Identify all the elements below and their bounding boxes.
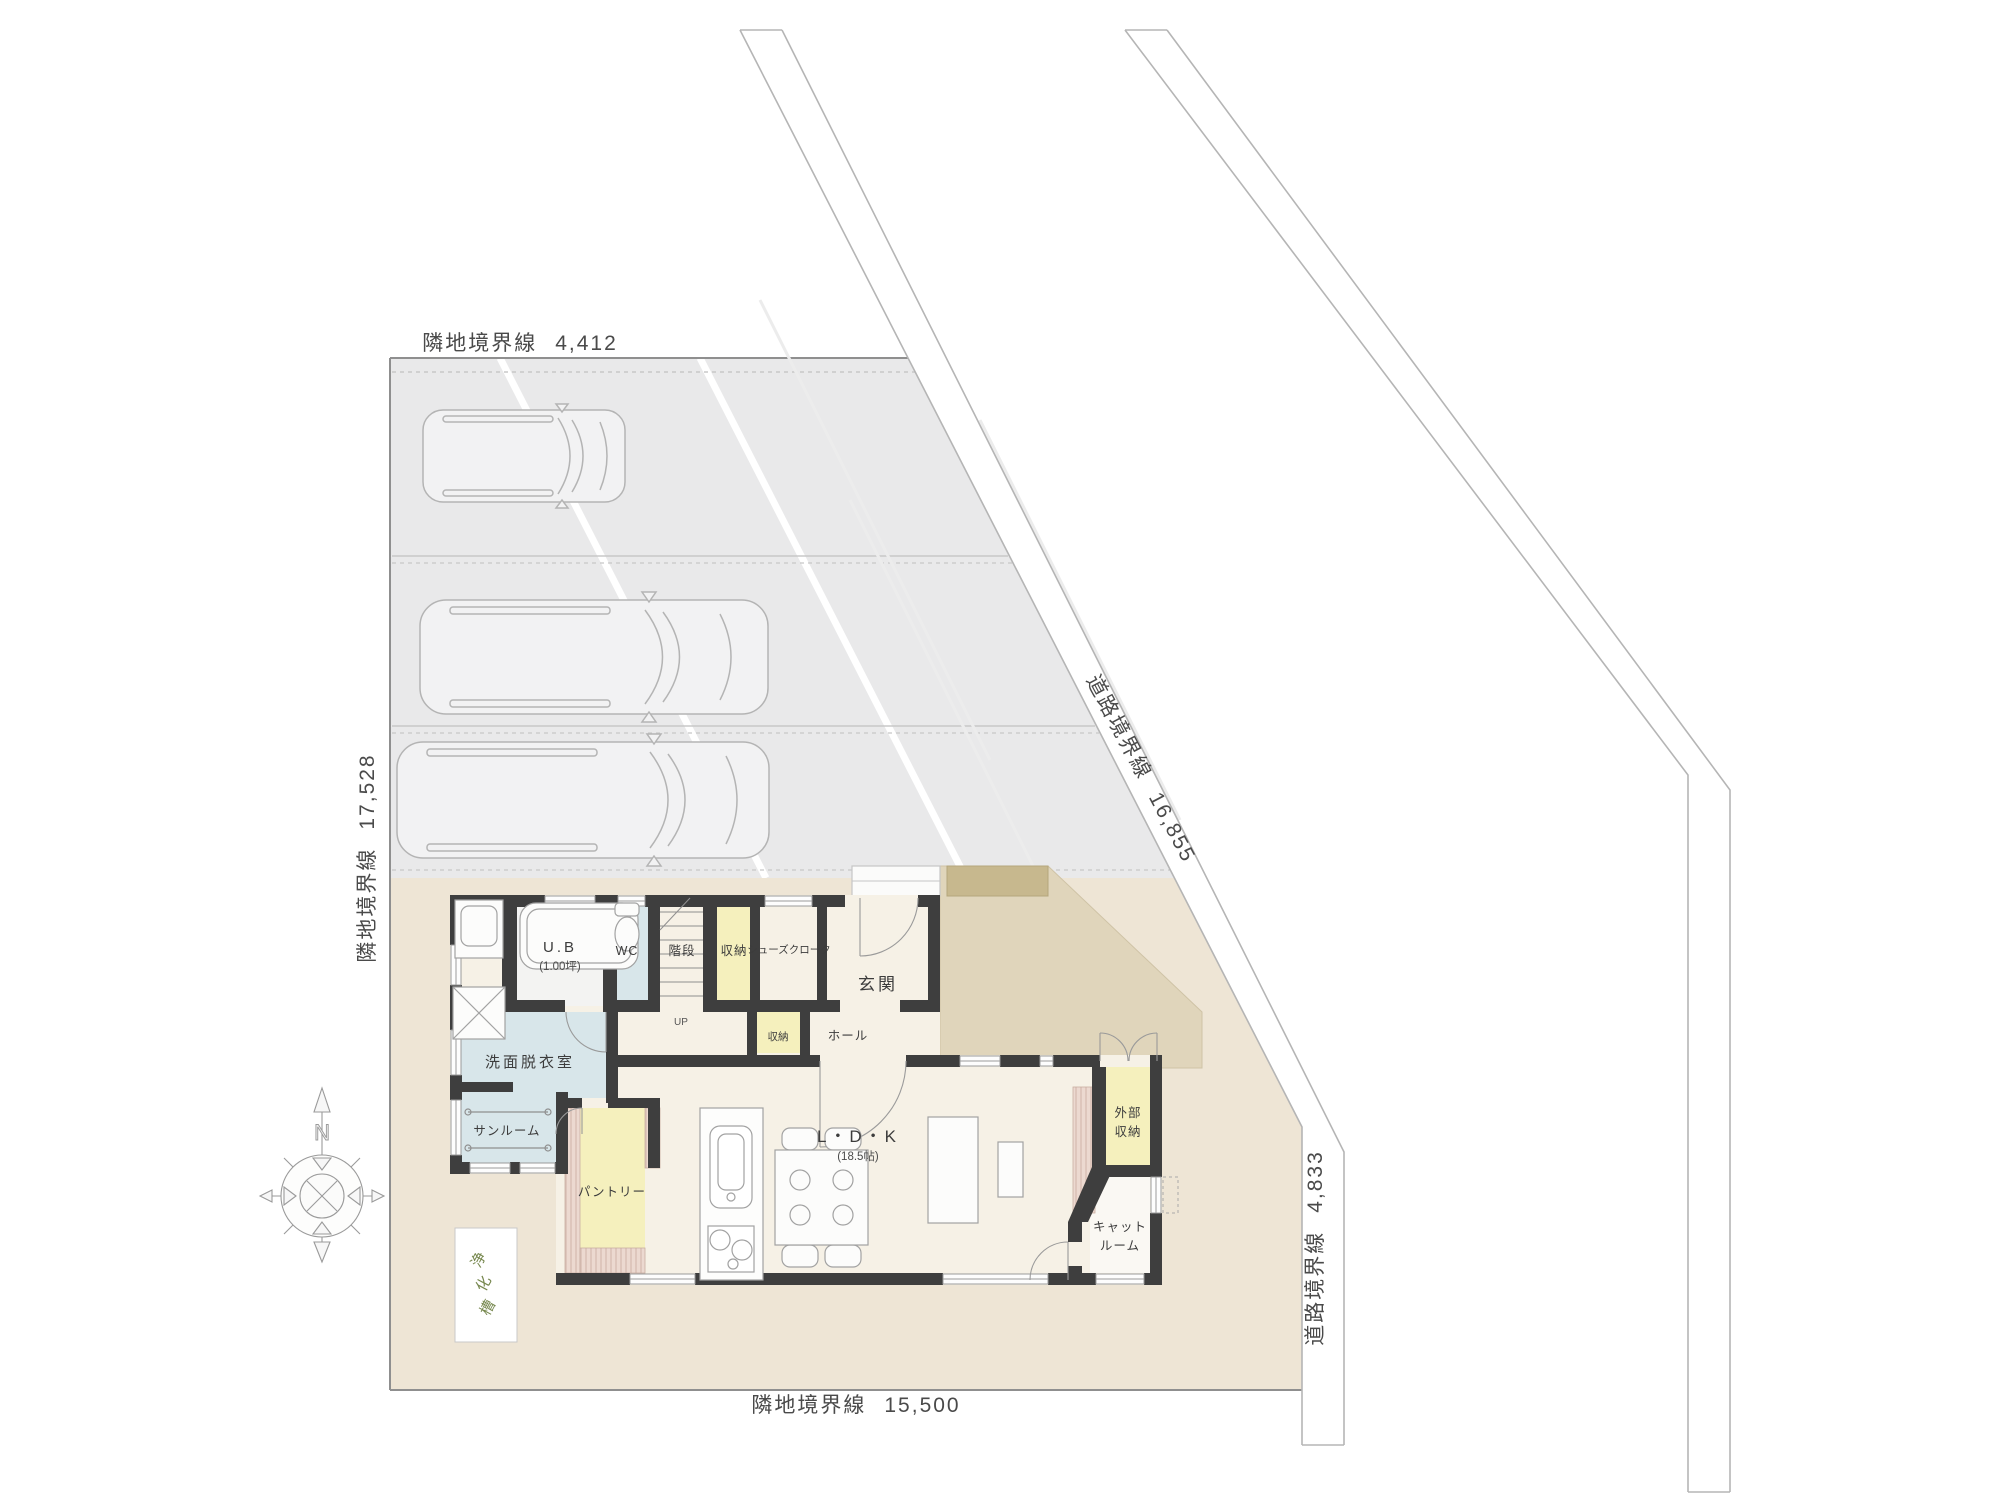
label-pantry: パントリー — [578, 1185, 646, 1199]
label-storage-hall: 収納 — [768, 1030, 789, 1043]
entrance-porch — [852, 866, 940, 896]
boundary-right-label: 道路境界線4,833 — [1304, 1150, 1327, 1346]
boundary-left-label: 隣地境界線17,528 — [356, 753, 379, 962]
car-3 — [397, 734, 769, 866]
car-2 — [420, 592, 768, 722]
washer-icon — [453, 987, 505, 1039]
site-plan-page: 浄 化 槽 N U.B (1.00坪) WC 階段 収納 シューズクローク 玄関… — [0, 0, 1999, 1500]
boundary-bottom-label: 隣地境界線15,500 — [751, 1394, 960, 1417]
label-hall: ホール — [828, 1029, 869, 1043]
label-ldk: L・D・K — [817, 1127, 899, 1146]
label-ext-storage-1: 外部 — [1114, 1105, 1141, 1120]
vanity-icon — [455, 900, 503, 958]
label-washroom: 洗面脱衣室 — [485, 1054, 575, 1071]
kitchen-island — [700, 1108, 763, 1280]
label-cat-room-1: キャット — [1093, 1220, 1147, 1234]
septic-tank: 浄 化 槽 — [455, 1228, 517, 1342]
label-shoe-closet: シューズクローク — [747, 943, 830, 956]
floor-plan-drawing: 浄 化 槽 N U.B (1.00坪) WC 階段 収納 シューズクローク 玄関… — [0, 0, 1999, 1500]
label-storage-upper: 収納 — [720, 944, 747, 958]
label-ub: U.B — [543, 939, 577, 956]
compass-north-label: N — [314, 1120, 330, 1145]
label-stairs: 階段 — [668, 943, 695, 958]
label-ldk-size: (18.5帖) — [837, 1149, 879, 1163]
label-ub-size: (1.00坪) — [539, 960, 581, 973]
label-entrance: 玄関 — [858, 975, 898, 994]
entrance-step — [947, 866, 1048, 896]
label-ext-storage-2: 収納 — [1114, 1125, 1141, 1139]
compass-rose-icon: N — [260, 1088, 384, 1262]
label-wc: WC — [616, 944, 639, 958]
boundary-top-label: 隣地境界線4,412 — [422, 332, 618, 355]
car-1 — [423, 404, 625, 508]
label-stairs-up: UP — [674, 1017, 688, 1028]
label-cat-room-2: ルーム — [1100, 1239, 1140, 1253]
label-sunroom: サンルーム — [473, 1124, 540, 1138]
